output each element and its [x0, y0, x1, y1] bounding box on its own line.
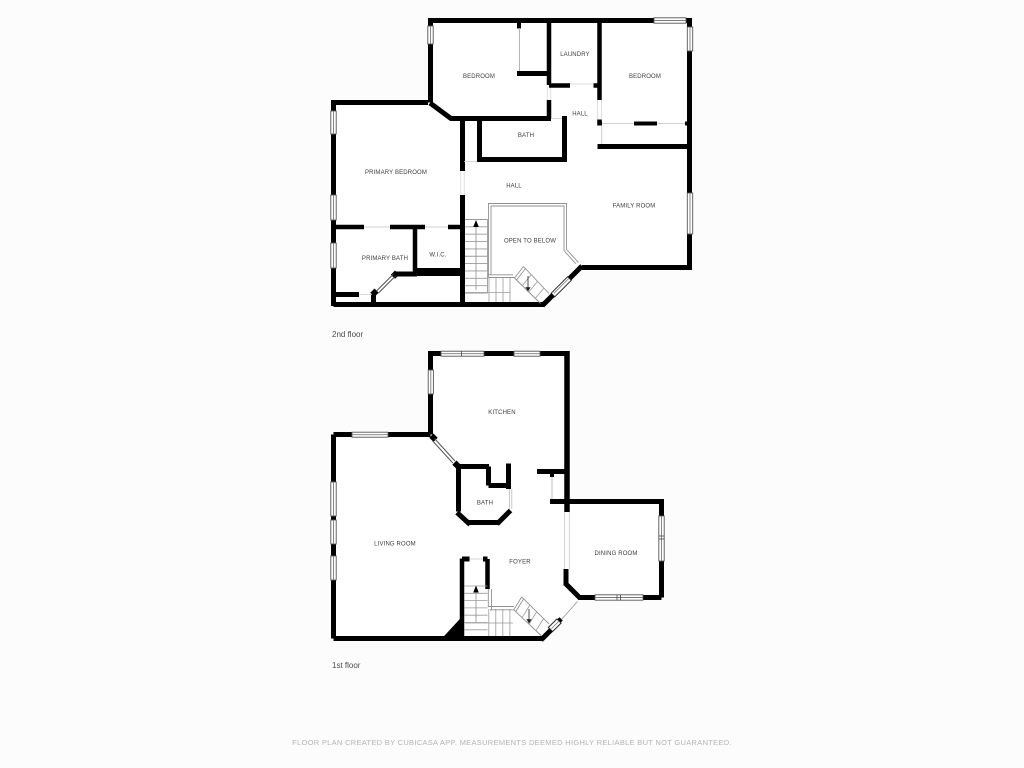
svg-text:HALL: HALL [572, 112, 588, 118]
svg-text:BEDROOM: BEDROOM [463, 74, 495, 80]
svg-text:KITCHEN: KITCHEN [488, 410, 515, 416]
svg-text:FAMILY ROOM: FAMILY ROOM [613, 204, 656, 210]
svg-text:HALL: HALL [506, 184, 522, 190]
svg-text:BATH: BATH [477, 501, 493, 507]
svg-text:PRIMARY BEDROOM: PRIMARY BEDROOM [365, 170, 427, 176]
svg-text:FLOOR PLAN CREATED BY CUBICASA: FLOOR PLAN CREATED BY CUBICASA APP. MEAS… [292, 738, 732, 747]
svg-text:PRIMARY BATH: PRIMARY BATH [362, 256, 408, 262]
svg-text:DINING ROOM: DINING ROOM [595, 551, 638, 557]
svg-text:W.I.C.: W.I.C. [429, 253, 446, 259]
svg-text:FOYER: FOYER [509, 560, 531, 566]
svg-text:2nd floor: 2nd floor [332, 330, 363, 339]
svg-text:1st floor: 1st floor [332, 661, 361, 670]
svg-text:LAUNDRY: LAUNDRY [560, 52, 590, 58]
svg-text:BEDROOM: BEDROOM [629, 74, 661, 80]
svg-text:BATH: BATH [518, 133, 534, 139]
svg-text:LIVING ROOM: LIVING ROOM [374, 542, 416, 548]
svg-text:OPEN TO BELOW: OPEN TO BELOW [504, 239, 556, 245]
